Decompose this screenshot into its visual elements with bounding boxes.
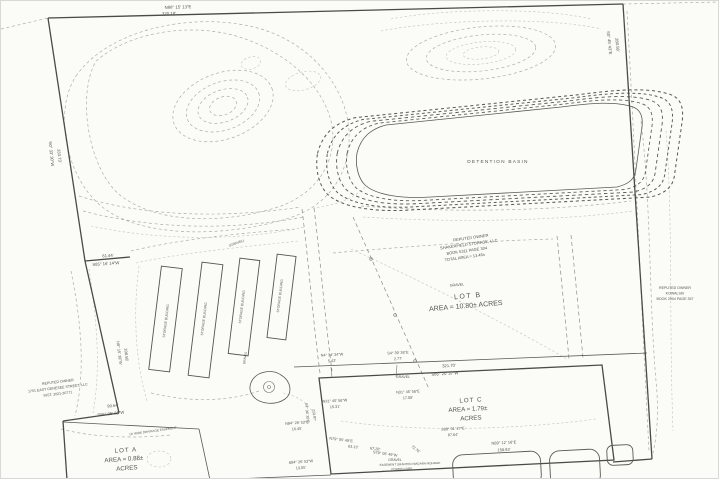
distance-west-upper-line: 333.73' [56, 149, 62, 163]
contour-line [1, 18, 48, 29]
contour-line [666, 131, 673, 431]
distance-east-line: 280.56' [614, 38, 620, 52]
lot-b-area: AREA = 10.80± ACRES [429, 300, 503, 313]
boundary-east-line [623, 4, 652, 459]
detention-basin-group [317, 90, 683, 211]
labels-layer: N88° 15' 13"E320.18'S0° 45' 43"E280.56'N… [28, 4, 694, 473]
site-plan-svg: N88° 15' 13"E320.18'S0° 45' 43"E280.56'N… [1, 1, 719, 479]
distance-lotc-nw1: 17.08' [403, 396, 414, 401]
boundary-south-line2 [209, 475, 331, 479]
lot-b-title: LOT B [454, 292, 482, 301]
distance-west-mid-line: 208.58' [123, 348, 130, 362]
boundary-west-upper-line [48, 18, 85, 261]
contour-line [363, 211, 633, 220]
distance-south-1: 63.13' [348, 444, 359, 449]
gravel-label-yard: (GRAVEL) [229, 238, 245, 247]
contour-line [89, 269, 97, 413]
gravel-label-lotb: GRAVEL [450, 282, 465, 287]
distance-south-3: 72.76' [410, 444, 421, 454]
contour-ring [147, 451, 171, 467]
drive-edge [557, 236, 569, 359]
bearing-lotc-nw2: N31° 45' 56"W [323, 398, 348, 403]
lot-a-north-line [63, 422, 199, 429]
existing-building-3 [606, 444, 633, 465]
detention-basin-label: DETENTION BASIN [467, 159, 528, 165]
bearing-north-line: N88° 15' 13"E [165, 4, 192, 10]
bearing-sw-1: N84° 26' 53"E [285, 420, 309, 426]
distance-lotc-north: 321.70' [442, 363, 456, 369]
distance-connector-west: 5.43' [328, 359, 337, 363]
contour-line [136, 266, 147, 401]
existing-buildings-group [452, 444, 633, 479]
basin-contour-ring [327, 93, 673, 207]
gravel-label-drive: GRAVEL [242, 351, 248, 364]
survey-plat-sheet: N88° 15' 13"E320.18'S0° 45' 43"E280.56'N… [0, 0, 719, 479]
contour-lines-group [1, 2, 719, 467]
lot-c-title: LOT C [459, 396, 482, 404]
owner-right-line1: REPUTED OWNER [659, 286, 691, 290]
bearing-lotc-south: N89° 12' 16"E [491, 439, 516, 445]
pond-feature-group [250, 372, 290, 404]
existing-building-2 [549, 449, 601, 479]
contour-line [623, 2, 719, 4]
gravel-label-lotc-north: GRAVEL [396, 375, 410, 379]
lot-a-units: ACRES [116, 464, 138, 472]
bearing-west-mid-line: N0° 15' 39"W [116, 341, 124, 365]
bearing-sw-2: S84° 26' 53"W [289, 459, 314, 465]
contour-line [131, 229, 296, 251]
contour-ring [207, 93, 239, 119]
contour-line [151, 391, 259, 400]
detention-basin-outline [356, 103, 642, 197]
pond-inner-circle [264, 382, 275, 393]
pond-outline [250, 372, 290, 404]
contour-line [71, 271, 81, 416]
distance-sw-1: 16.45' [292, 427, 303, 432]
lot-a-title: LOT A [114, 446, 137, 455]
bearing-south-1: N79° 05' 49"E [329, 437, 353, 444]
contour-ring [462, 45, 499, 61]
drive-edge [302, 209, 320, 373]
contour-line [641, 121, 657, 453]
drive-edge [571, 235, 583, 358]
bearing-east-line: S0° 45' 43"E [606, 31, 613, 55]
basin-contour-ring [317, 90, 683, 211]
contour-line [86, 30, 332, 219]
contour-line [136, 241, 299, 263]
lot-c-units: ACRES [460, 414, 482, 422]
gravel-drive-lines [302, 208, 583, 373]
pond-center-point [268, 386, 271, 389]
bearing-lotc-mid: S89° 01' 27"E [441, 426, 465, 431]
boundary-west-mid-line [85, 261, 119, 413]
boundary-north-line [48, 4, 623, 18]
lot-c-area: AREA = 1.79± [448, 405, 488, 414]
bearing-connector-west: N4° 34' 34"W [321, 352, 344, 357]
bearing-south-2: S79° 05' 49"W [373, 450, 398, 457]
bearing-west-upper-line: N0° 33' 30"W [48, 141, 56, 166]
bearing-west-jog: S85° 16' 14"W [92, 260, 119, 267]
owner-right-line2: KOWALSKI [666, 292, 685, 296]
utility-pole-icon [394, 314, 397, 317]
bearing-lotc-nw1: N31° 45' 56"E [396, 389, 420, 394]
bearing-connector-east: S4° 39' 26"E [387, 350, 409, 355]
contour-ring [404, 19, 559, 86]
boundary-west-lower-line [63, 421, 67, 479]
distance-connector-east: 2.77' [394, 357, 403, 361]
distance-west-jog: 61.44' [102, 253, 114, 259]
bearing-lota-north: S86° 05' 21"W [97, 410, 124, 418]
storage-buildings-group [149, 254, 296, 378]
distance-lotc-mid: 87.64' [448, 433, 459, 438]
distance-lotc-south: 158.63' [497, 447, 510, 453]
basin-contour-ring [337, 97, 663, 204]
contour-line [64, 22, 349, 232]
distance-north-line: 320.18' [162, 11, 176, 16]
basin-contour-ring [346, 100, 652, 201]
distance-lota-north: 90.64' [107, 402, 119, 408]
contour-line [391, 11, 591, 19]
contour-ring [424, 29, 537, 76]
drive-edge [314, 208, 332, 371]
owner-right-line3: BOOK 2904 PAGE 357 [656, 297, 693, 301]
lot-a-area: AREA = 0.88± [104, 455, 144, 465]
contour-line [283, 393, 317, 421]
distance-sw-2: 13.05' [296, 466, 307, 471]
contour-ring [193, 82, 253, 130]
contour-ring [445, 38, 517, 67]
bearing-lotc-north: S85° 20' 37"W [431, 370, 458, 376]
owner-left-line3: INST. 2021-30771 [43, 390, 72, 398]
contour-line [313, 187, 365, 208]
distance-lotc-nw2: 15.31' [330, 405, 341, 410]
contour-ring [163, 57, 283, 155]
contour-line [79, 196, 301, 214]
drainage-easement-note: 10' WIDE DRAINAGE EASEMENT [129, 426, 177, 437]
lot-lines-group [63, 353, 647, 479]
contour-ring [240, 55, 262, 72]
property-boundary-group [48, 4, 652, 479]
easement-note-line2: POWER CORP. [391, 467, 413, 472]
distance-lotc-west: 223.97' [311, 409, 316, 421]
contour-ring [179, 70, 267, 141]
lot-a-east-line [199, 429, 210, 479]
